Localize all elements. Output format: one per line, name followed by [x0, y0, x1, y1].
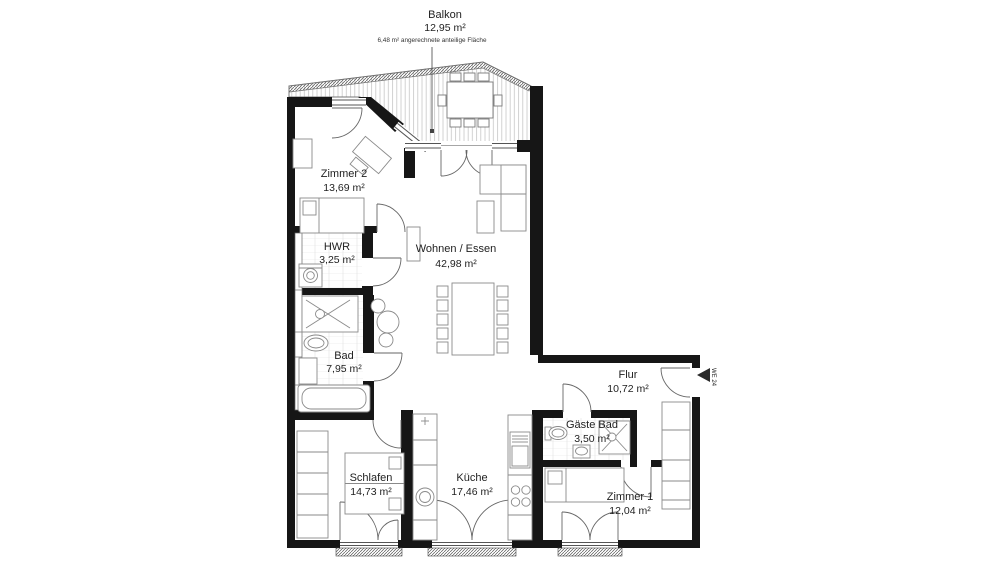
toilet-icon: [545, 427, 567, 441]
svg-text:12,04 m²: 12,04 m²: [609, 505, 651, 517]
svg-text:Schlafen: Schlafen: [350, 472, 393, 484]
window-zimmer2-top: [332, 98, 366, 107]
door-french-kueche: [432, 500, 512, 540]
svg-text:Küche: Küche: [456, 472, 487, 484]
wardrobe-zimmer1-icon: [662, 402, 690, 509]
round-table-icon: [371, 299, 399, 347]
svg-text:3,50 m²: 3,50 m²: [574, 433, 610, 445]
svg-text:Bad: Bad: [334, 350, 354, 362]
sink-icon: [304, 335, 328, 351]
window-living-front: [405, 141, 517, 151]
wall-zimmer1-top: [651, 460, 662, 467]
wall-right: [692, 397, 700, 548]
wall-hwr-right: [362, 286, 373, 295]
floor-plan: WE 24 Balkon 12,95 m² 6,48 m² angerechne…: [0, 0, 1000, 562]
svg-text:13,69 m²: 13,69 m²: [323, 182, 365, 194]
coffee-table-icon: [477, 201, 494, 233]
svg-text:7,95 m²: 7,95 m²: [326, 363, 362, 375]
wall-zimmer1-top: [533, 460, 621, 467]
svg-text:Zimmer 1: Zimmer 1: [607, 491, 653, 503]
wall-bottom: [512, 540, 562, 548]
wall-gaeste-bad-right: [630, 410, 637, 467]
label-zimmer2: Zimmer 2 13,69 m²: [321, 168, 367, 194]
entrance-label: WE 24: [710, 368, 716, 387]
wall-living-right: [530, 86, 543, 355]
svg-text:Gäste Bad: Gäste Bad: [566, 419, 618, 431]
balcony: [289, 47, 531, 143]
balcony-leader-dot: [430, 129, 434, 133]
label-zimmer1: Zimmer 1 12,04 m²: [607, 491, 653, 517]
svg-text:17,46 m²: 17,46 m²: [451, 486, 493, 498]
window-kueche-door: [428, 540, 516, 556]
svg-text:3,25 m²: 3,25 m²: [319, 254, 355, 266]
washing-machine-icon: [299, 264, 322, 287]
window-schlafen-door: [336, 540, 402, 556]
wall-kueche-right: [532, 410, 543, 540]
svg-text:12,95 m²: 12,95 m²: [424, 22, 466, 34]
svg-text:14,73 m²: 14,73 m²: [350, 486, 392, 498]
svg-text:Balkon: Balkon: [428, 9, 462, 21]
kitchen-counter-left-icon: [413, 414, 437, 540]
wall-zimmer2-wohnen: [404, 148, 415, 178]
svg-text:42,98 m²: 42,98 m²: [435, 258, 477, 270]
wardrobe-schlafen-icon: [297, 431, 328, 538]
entrance-arrow-icon: [697, 368, 710, 382]
bathtub-icon: [298, 385, 370, 412]
wall-stub: [517, 140, 530, 152]
label-hwr: HWR 3,25 m²: [319, 241, 355, 266]
wall-gaeste-bad-top: [533, 410, 563, 418]
window-zimmer1-door: [558, 540, 622, 556]
svg-text:10,72 m²: 10,72 m²: [607, 383, 649, 395]
bed-zimmer2-icon: [300, 198, 364, 233]
door-entrance: [661, 368, 690, 397]
bath-cabinet-icon: [299, 358, 317, 384]
label-flur: Flur 10,72 m²: [607, 369, 649, 395]
kitchen-counter-right-icon: [508, 415, 532, 540]
wall-hwr-right: [362, 230, 373, 258]
shower-icon: [302, 296, 358, 332]
wall-hwr-bad: [295, 288, 373, 295]
label-kueche: Küche 17,46 m²: [451, 472, 493, 498]
wall-bottom: [618, 540, 700, 548]
wall-bottom: [398, 540, 432, 548]
wall-flur-top: [538, 355, 700, 363]
door-gaeste-bad: [563, 384, 591, 412]
door-zimmer2-balcony: [332, 108, 362, 138]
cabinet-icon: [293, 139, 312, 168]
guest-sink-icon: [573, 445, 590, 458]
svg-text:Wohnen / Essen: Wohnen / Essen: [416, 243, 497, 255]
label-balkon: Balkon 12,95 m² 6,48 m² angerechnete ant…: [377, 9, 487, 44]
svg-text:Flur: Flur: [619, 369, 638, 381]
svg-text:6,48 m² angerechnete anteilige: 6,48 m² angerechnete anteilige Fläche: [377, 37, 487, 44]
svg-text:Zimmer 2: Zimmer 2: [321, 168, 367, 180]
door-schlafen: [373, 420, 401, 448]
door-hwr: [373, 258, 401, 286]
entrance-marker: WE 24: [697, 368, 716, 387]
wall-right: [692, 363, 700, 368]
door-bad: [374, 353, 402, 381]
floorplan-page: WE 24 Balkon 12,95 m² 6,48 m² angerechne…: [0, 0, 1000, 562]
door-zimmer2: [377, 204, 405, 232]
oven-icon: [510, 432, 530, 468]
wall-bottom: [287, 540, 340, 548]
svg-text:HWR: HWR: [324, 241, 350, 253]
label-wohnen-essen: Wohnen / Essen 42,98 m²: [416, 243, 497, 270]
dining-table-icon: [437, 283, 508, 355]
